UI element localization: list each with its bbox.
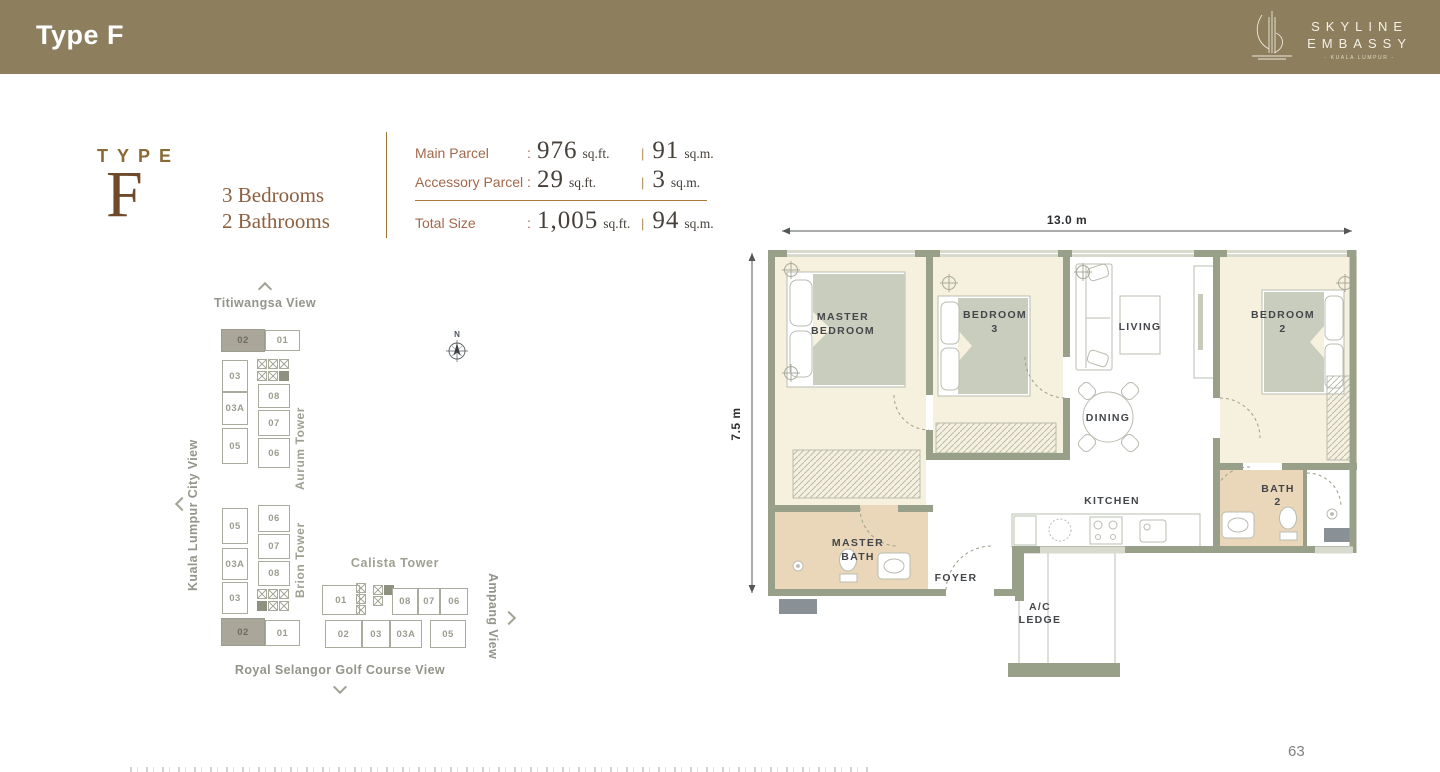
brand-line-1: SKYLINE: [1311, 18, 1408, 35]
sofa: [1076, 263, 1112, 370]
elevator-icon: [268, 371, 278, 381]
area-table: Main Parcel : 976 sq.ft. | 91 sq.m. Acce…: [415, 137, 715, 236]
elevator-icon: [356, 594, 366, 604]
chevron-up-icon: [258, 282, 272, 296]
bedrooms-line: 3 Bedrooms: [222, 182, 330, 208]
elevator-icon: [257, 371, 267, 381]
area-label: Main Parcel: [415, 145, 527, 161]
elevator-icon: [373, 596, 383, 606]
unit-cell-calista-02: 02: [325, 620, 362, 648]
unit-cell-calista-07: 07: [418, 588, 440, 615]
svg-text:2: 2: [1274, 496, 1281, 508]
page-number: 63: [1288, 743, 1305, 760]
unit-cell-brion-03: 03: [222, 582, 248, 614]
brand-tagline: - KUALA LUMPUR -: [1324, 55, 1394, 61]
area-label: Total Size: [415, 215, 527, 231]
unit-cell-brion-03a: 03A: [222, 548, 248, 580]
site-plan: Titiwangsa View N 02 01 03 03A 05 08 07: [160, 278, 540, 708]
elevator-icon: [279, 589, 289, 599]
room-label-living: LIVING: [1119, 321, 1162, 333]
svg-text:2: 2: [1279, 323, 1286, 335]
dimension-width-label: 13.0 m: [1047, 213, 1087, 227]
unit-cell-aurum-07: 07: [258, 410, 290, 436]
elevator-icon: [257, 589, 267, 599]
room-label-dining: DINING: [1086, 412, 1131, 424]
chevron-right-icon: [502, 611, 516, 625]
room-label-ac-ledge: A/C: [1029, 601, 1051, 613]
elevator-icon: [279, 601, 289, 611]
chevron-down-icon: [333, 680, 347, 694]
view-label-kl-city: Kuala Lumpur City View: [186, 416, 200, 591]
elevator-icon: [268, 359, 278, 369]
bedroom3-wardrobe: [936, 423, 1056, 453]
service-core-icon: [279, 371, 289, 381]
unit-cell-calista-08: 08: [392, 588, 418, 615]
tower-label-calista: Calista Tower: [310, 556, 480, 570]
svg-text:LEDGE: LEDGE: [1019, 614, 1062, 626]
sqft-value: 976: [537, 137, 578, 165]
svg-text:3: 3: [991, 323, 998, 335]
unit-cell-calista-06: 06: [440, 588, 468, 615]
view-label-ampang: Ampang View: [486, 573, 500, 673]
room-label-bedroom3: BEDROOM: [963, 309, 1027, 321]
sqm-value: 91: [652, 137, 679, 165]
header-bar: Type F SKYLINE EMBASSY: [0, 0, 1440, 74]
gold-rule: [415, 200, 707, 201]
unit-cell-aurum-05: 05: [222, 428, 248, 464]
room-label-bedroom2: BEDROOM: [1251, 309, 1315, 321]
area-label: Accessory Parcel: [415, 174, 527, 190]
svg-text:BEDROOM: BEDROOM: [811, 325, 875, 337]
room-label-bath2: BATH: [1261, 483, 1295, 495]
unit-cell-aurum-01: 01: [265, 330, 300, 351]
sqft-value: 1,005: [537, 207, 598, 235]
elevator-icon: [268, 601, 278, 611]
type-letter: F: [106, 160, 143, 230]
brand-line-2: EMBASSY: [1307, 35, 1412, 52]
unit-cell-brion-02: 02: [221, 618, 265, 646]
elevator-icon: [257, 359, 267, 369]
master-wardrobe: [793, 450, 920, 498]
view-label-titiwangsa: Titiwangsa View: [195, 296, 335, 310]
unit-cell-brion-06: 06: [258, 505, 290, 532]
sqm-value: 3: [652, 166, 666, 194]
sqft-unit: sq.ft.: [569, 175, 596, 191]
sqft-value: 29: [537, 166, 564, 194]
bed-bath-summary: 3 Bedrooms 2 Bathrooms: [222, 182, 330, 234]
view-label-golf-course: Royal Selangor Golf Course View: [215, 663, 465, 677]
brochure-page: Type F SKYLINE EMBASSY: [0, 0, 1440, 772]
elevator-icon: [268, 589, 278, 599]
unit-cell-calista-01: 01: [322, 585, 360, 615]
ac-unit: [779, 599, 817, 614]
area-row-total-size: Total Size : 1,005 sq.ft. | 94 sq.m.: [415, 207, 715, 236]
brand-logo: SKYLINE EMBASSY - KUALA LUMPUR -: [1249, 8, 1412, 71]
sqm-unit: sq.m.: [684, 216, 713, 232]
dimension-height-label: 7.5 m: [729, 407, 743, 440]
brand-wordmark: SKYLINE EMBASSY - KUALA LUMPUR -: [1307, 18, 1412, 61]
area-row-accessory-parcel: Accessory Parcel : 29 sq.ft. | 3 sq.m.: [415, 166, 715, 195]
north-compass-icon: N: [444, 328, 470, 371]
skyline-tower-icon: [1249, 8, 1295, 71]
floorplan: 13.0 m 7.5 m MASTER BEDROOM BEDROOM 3 LI…: [720, 200, 1400, 700]
sqft-unit: sq.ft.: [583, 146, 610, 162]
unit-cell-aurum-02: 02: [221, 329, 265, 352]
unit-cell-brion-01: 01: [265, 620, 300, 646]
room-label-master-bath: MASTER: [832, 537, 884, 549]
vertical-divider: [386, 132, 387, 238]
svg-text:BATH: BATH: [841, 551, 875, 563]
sqm-value: 94: [652, 207, 679, 235]
tower-label-brion: Brion Tower: [293, 500, 307, 620]
room-label-kitchen: KITCHEN: [1084, 495, 1140, 507]
elevator-icon: [373, 585, 383, 595]
unit-cell-calista-03: 03: [362, 620, 390, 648]
unit-cell-aurum-03: 03: [222, 360, 248, 392]
unit-cell-brion-05: 05: [222, 508, 248, 544]
unit-cell-aurum-08: 08: [258, 384, 290, 408]
area-row-main-parcel: Main Parcel : 976 sq.ft. | 91 sq.m.: [415, 137, 715, 166]
room-label-master-bedroom: MASTER: [817, 311, 869, 323]
sqm-unit: sq.m.: [684, 146, 713, 162]
clipped-disclaimer-text: [130, 767, 870, 772]
unit-cell-calista-05: 05: [430, 620, 466, 648]
sqft-unit: sq.ft.: [603, 216, 630, 232]
bathrooms-line: 2 Bathrooms: [222, 208, 330, 234]
north-label: N: [454, 330, 460, 339]
unit-cell-aurum-06: 06: [258, 438, 290, 468]
elevator-icon: [356, 605, 366, 615]
unit-cell-brion-07: 07: [258, 534, 290, 559]
elevator-icon: [356, 583, 366, 593]
page-title: Type F: [36, 20, 124, 51]
unit-cell-calista-03a: 03A: [390, 620, 422, 648]
elevator-icon: [279, 359, 289, 369]
service-core-icon: [257, 601, 267, 611]
sqm-unit: sq.m.: [671, 175, 700, 191]
unit-cell-brion-08: 08: [258, 561, 290, 586]
kitchen-counter: [1012, 514, 1200, 547]
room-label-foyer: FOYER: [935, 572, 978, 584]
unit-cell-aurum-03a: 03A: [222, 392, 248, 425]
